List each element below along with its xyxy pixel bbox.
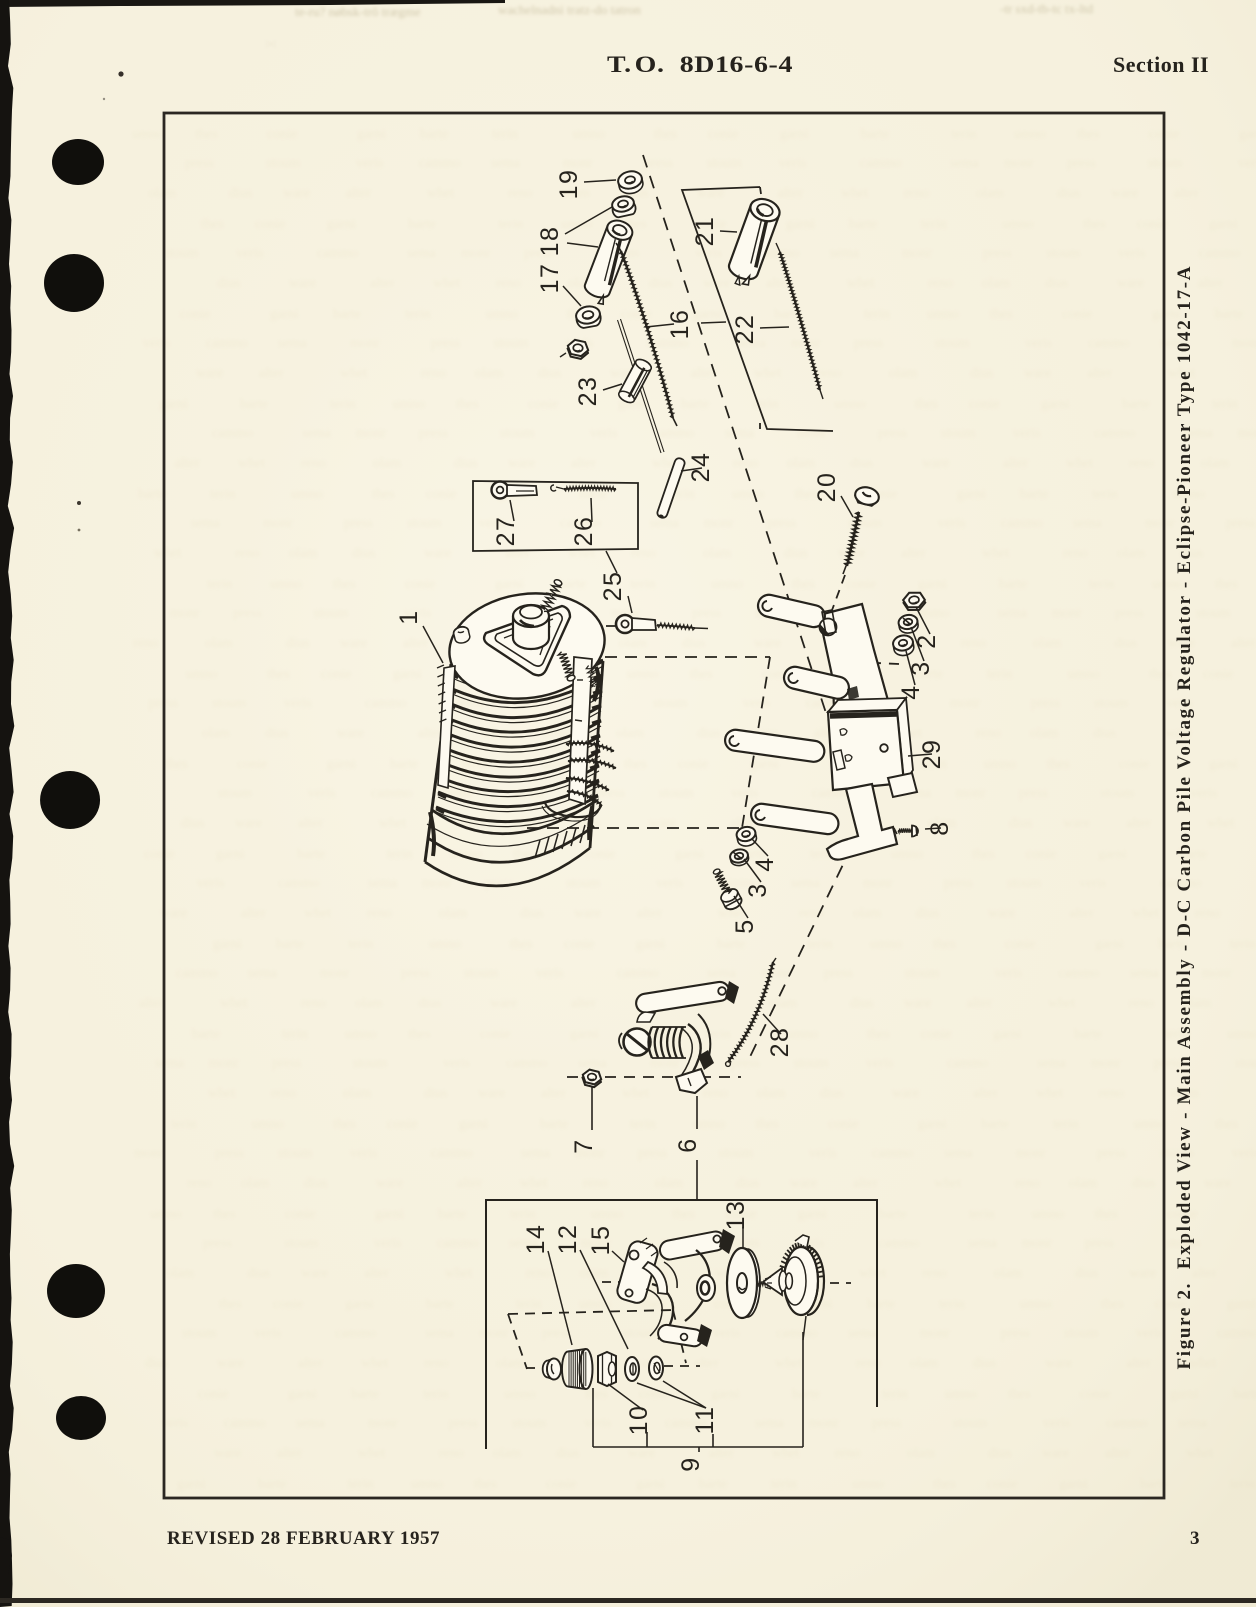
- svg-text:15: 15: [587, 1225, 615, 1256]
- svg-text:veriscammosemamonrpressstoumve: veriscammosemamonrpressstoumveriscammose…: [161, 1416, 1208, 1431]
- svg-text:20: 20: [813, 472, 841, 503]
- svg-text:12: 12: [554, 1224, 582, 1255]
- svg-text:umnothesconiegarnibarteterinum: umnothesconiegarnibarteterinumnothesconi…: [150, 1207, 1197, 1222]
- svg-text:25: 25: [599, 571, 627, 602]
- svg-text:warealterwhetrenoolamdiuswarea: warealterwhetrenoolamdiuswarealterwhetre…: [196, 366, 1195, 381]
- svg-text:REVISED 28 FEBRUARY 1957: REVISED 28 FEBRUARY 1957: [167, 1528, 440, 1549]
- svg-text:23: 23: [574, 376, 602, 407]
- svg-text:4: 4: [897, 684, 925, 699]
- svg-text:24: 24: [687, 452, 715, 483]
- svg-text:1: 1: [395, 609, 423, 624]
- svg-text:umnothesconiegarnibarteterinum: umnothesconiegarnibarteterinumnothesconi…: [186, 667, 1233, 682]
- svg-text:warealterwhetrenoolamdiuswarea: warealterwhetrenoolamdiuswarealterwhetre…: [214, 1446, 1213, 1461]
- svg-text:13: 13: [722, 1200, 750, 1231]
- svg-text:Figure 2. Exploded View - Mai: Figure 2. Exploded View - Main Assembly …: [1174, 266, 1195, 1369]
- svg-text:pressstoumveriscammosemamonrpr: pressstoumveriscammosemamonrpressstoumve…: [149, 696, 1193, 711]
- svg-text:8: 8: [926, 820, 954, 835]
- svg-text:olamdiuswarealterwhetrenoolamd: olamdiuswarealterwhetrenoolamdiuswarealt…: [202, 726, 1192, 741]
- svg-text:2: 2: [913, 633, 941, 648]
- svg-text::-:: :-:: [265, 35, 277, 50]
- svg-text:monrpressstoumveriscammosemamo: monrpressstoumveriscammosemamonrpresssto…: [170, 606, 1230, 621]
- svg-text:3: 3: [1190, 1528, 1200, 1549]
- svg-text:-tr sxd-tb-tc tx-ltd: -tr sxd-tb-tc tx-ltd: [1000, 1, 1094, 16]
- svg-text:21: 21: [691, 216, 719, 247]
- svg-text:27: 27: [492, 516, 520, 547]
- svg-text:stoumveriscammosemamonrpressst: stoumveriscammosemamonrpressstoumverisca…: [182, 1326, 1256, 1341]
- svg-text:5: 5: [731, 918, 759, 933]
- svg-text:26: 26: [570, 516, 598, 547]
- svg-text:wachelnadni tratz-do tatron: wachelnadni tratz-do tatron: [498, 2, 641, 17]
- svg-text:28: 28: [766, 1027, 794, 1058]
- svg-text:10: 10: [625, 1405, 653, 1436]
- svg-text:4: 4: [751, 856, 779, 871]
- svg-text:garnibarteterinumnothesconiega: garnibarteterinumnothesconiegarnibartete…: [213, 937, 1256, 952]
- svg-text:coniegarnibarteterinumnothesco: coniegarnibarteterinumnothesconiegarniba…: [198, 1387, 1256, 1402]
- svg-text:te-ru? nøbsk-trô trægme: te-ru? nøbsk-trô trægme: [295, 4, 421, 19]
- svg-text:whetrenoolamdiuswarealterwhetr: whetrenoolamdiuswarealterwhetrenoolamdiu…: [208, 1086, 1199, 1101]
- svg-text:16: 16: [666, 309, 694, 340]
- svg-text:11: 11: [691, 1406, 719, 1435]
- svg-text:coniegarnibarteterinumnothesco: coniegarnibarteterinumnothesconiegarniba…: [180, 307, 1243, 322]
- svg-text:17: 17: [536, 263, 564, 294]
- svg-text:6: 6: [674, 1137, 702, 1152]
- svg-text:Section II: Section II: [1113, 52, 1209, 77]
- svg-text:18: 18: [536, 226, 564, 257]
- svg-text:3: 3: [744, 882, 772, 897]
- svg-text:22: 22: [731, 314, 759, 345]
- svg-text:3: 3: [907, 660, 935, 675]
- svg-text:14: 14: [522, 1224, 550, 1255]
- svg-text:19: 19: [555, 169, 583, 200]
- svg-text:T. O. 8D16-6-4: T. O. 8D16-6-4: [607, 52, 793, 77]
- svg-text:9: 9: [677, 1456, 705, 1471]
- svg-text:semamonrpressstoumveriscammose: semamonrpressstoumveriscammosemamonrpres…: [191, 516, 1255, 531]
- svg-text:barteterinumnothesconiegarniba: barteterinumnothesconiegarnibarteterinum…: [192, 1027, 1256, 1042]
- svg-text:coniegarnibarteterinumnothesco: coniegarnibarteterinumnothesconiegarniba…: [144, 847, 1207, 862]
- svg-text:7: 7: [570, 1138, 598, 1153]
- svg-text:29: 29: [918, 739, 946, 770]
